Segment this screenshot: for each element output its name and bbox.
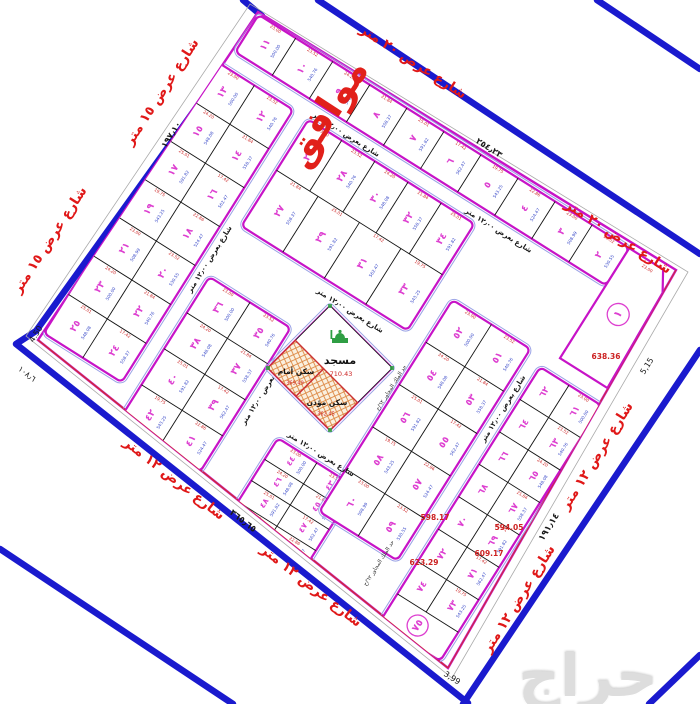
survey-tick [328, 428, 332, 432]
muezzin-house-label: سكن مؤذن [307, 398, 348, 407]
survey-tick [328, 304, 332, 308]
mosque-label: مسجد [324, 354, 356, 367]
mosque-icon-base [332, 338, 348, 343]
highlight-area: 638.36 [592, 352, 621, 361]
survey-tick [390, 366, 394, 370]
muezzin-house-area: 362.45 [317, 412, 335, 418]
mosque-icon-crescent [338, 330, 341, 333]
subdivision-plan-image: ١١23.00500.00١٠23.52540.76٩24.20548.08٨2… [0, 0, 700, 704]
imam-house-label: سكن أمام [278, 366, 315, 376]
survey-tick [266, 366, 270, 370]
mosque-area: 710.43 [330, 370, 353, 378]
highlight-area: 598.17 [421, 513, 450, 522]
highlight-area: 623.29 [410, 558, 439, 567]
haraj-watermark: حراج [518, 642, 658, 704]
highlight-area: 594.05 [495, 523, 524, 532]
mosque-icon-minaret [331, 330, 333, 339]
imam-house-area: 369.49 [286, 381, 304, 387]
highlight-area: 609.17 [475, 549, 504, 558]
